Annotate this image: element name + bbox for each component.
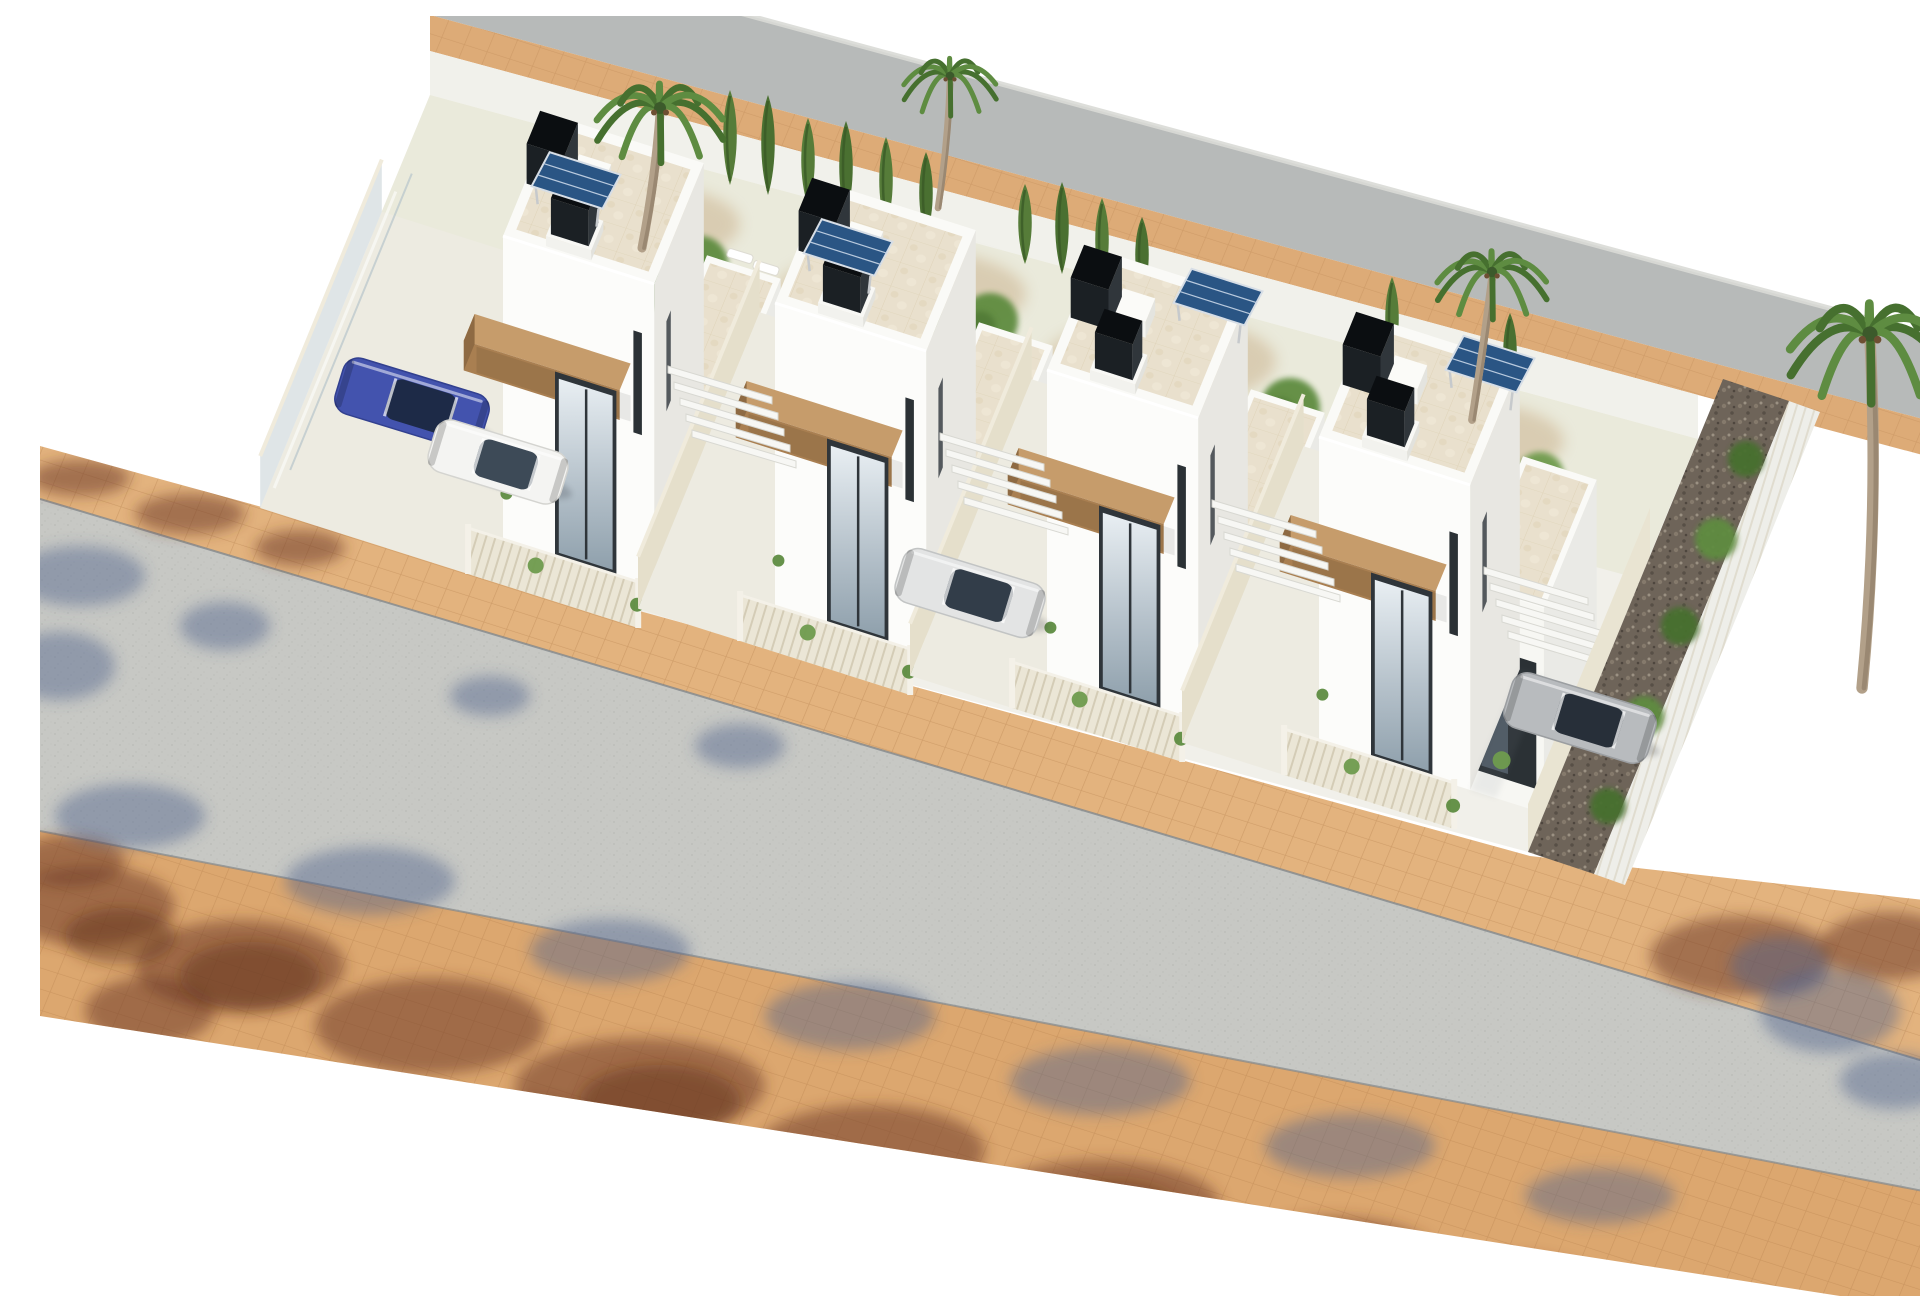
tree-shadow-brown [255,530,345,566]
window-slit [1449,531,1458,636]
tree-shadow-blue [450,676,530,716]
path-shrub [528,557,544,573]
garden-shrub [1728,441,1764,477]
path-shrub [1344,758,1360,774]
tree-shadow-brown [135,494,245,534]
tree-shadow-blue [285,847,455,915]
palm-frond [950,75,951,116]
tree-shadow-blue [180,602,270,650]
tree-shadow-blue [1730,936,1830,996]
garden-shrub [1695,518,1737,560]
path-shrub [1316,689,1328,701]
fence-pier [1281,725,1287,775]
tree-shadow-blue [695,724,785,768]
tree-shadow-blue [1265,1114,1435,1178]
path-shrub [1446,799,1460,813]
tree-shadow-blue [765,982,935,1050]
window-slit [633,330,642,435]
tree-shadow-brown [315,978,545,1074]
window-slit [938,377,942,478]
window-slit [666,310,670,411]
window-slit [1482,511,1486,612]
window-slit [905,397,914,502]
tree-shadow-brown [65,908,175,964]
fence-pier [1009,658,1015,708]
fence-pier [465,524,471,574]
path-shrub [772,555,784,567]
tree-shadow-brown [180,942,320,1010]
tree-shadow-blue [1525,1168,1675,1224]
render-canvas [40,16,1920,1296]
palm-frond [1492,271,1493,319]
garden-shrub [1590,788,1626,824]
architectural-aerial-render [40,16,1920,1296]
tree-shadow-blue [55,784,205,848]
palm-frond [1870,333,1871,404]
window-slit [1210,444,1214,545]
path-shrub [1493,751,1511,769]
palm-frond [660,107,661,163]
path-shrub [1072,691,1088,707]
path-shrub [800,624,816,640]
garden-shrub [1661,607,1699,645]
fence-pier [737,591,743,641]
tree-shadow-blue [530,919,690,983]
tree-shadow-blue [1010,1047,1190,1115]
window-slit [1177,464,1186,569]
